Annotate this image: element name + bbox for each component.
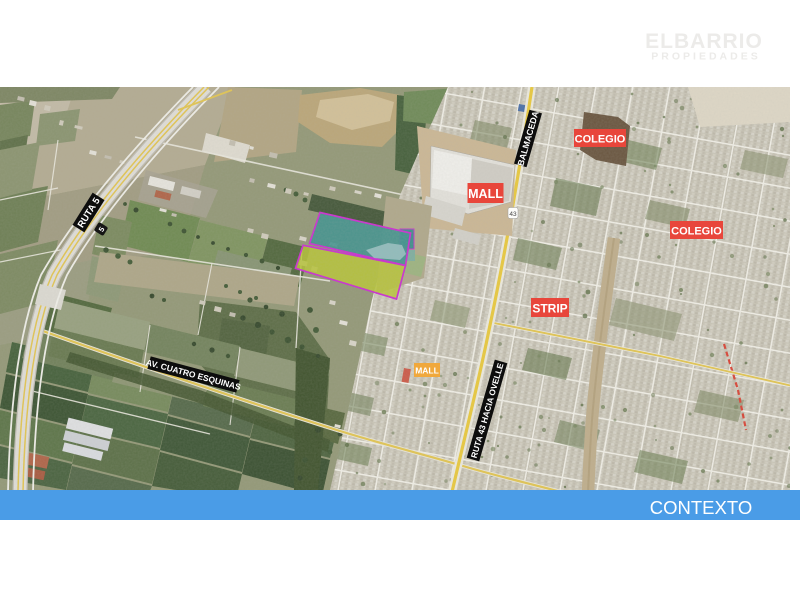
svg-text:STRIP: STRIP: [532, 302, 567, 316]
svg-text:COLEGIO: COLEGIO: [671, 226, 722, 238]
svg-text:MALL: MALL: [468, 187, 503, 201]
svg-text:CONTEXTO: CONTEXTO: [650, 497, 752, 518]
svg-text:MALL: MALL: [415, 366, 439, 376]
svg-text:43: 43: [509, 211, 517, 218]
svg-text:PROPIEDADES: PROPIEDADES: [651, 51, 760, 63]
svg-text:COLEGIO: COLEGIO: [575, 134, 626, 146]
